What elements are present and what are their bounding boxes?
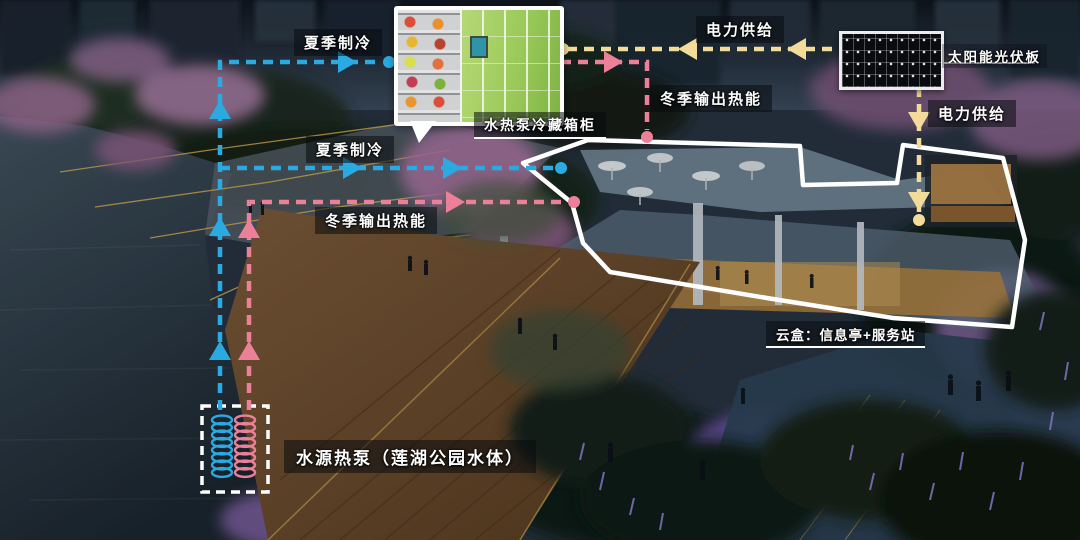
flow-arrow-left-icon (787, 38, 806, 60)
solar-panel-image (839, 31, 944, 90)
cloud-box-outline (523, 140, 1025, 327)
label-water-source-heat-pump: 水源热泵（莲湖公园水体） (284, 440, 536, 473)
flow-arrow-right-icon (446, 191, 465, 213)
cooling-endpoint-building (555, 162, 567, 174)
power-endpoint-building (913, 214, 925, 226)
flow-arrow-up-icon (209, 217, 231, 236)
heat-pump-cabinet-image (394, 6, 564, 126)
flow-arrow-up-icon (238, 219, 260, 238)
label-winter-heat-mid: 冬季输出热能 (315, 207, 437, 234)
flow-arrow-down-icon (908, 192, 930, 211)
heating-endpoint-roof (641, 131, 653, 143)
flow-arrow-up-icon (238, 341, 260, 360)
cooling-coil-icon (212, 416, 232, 477)
label-solar-pv-panel: 太阳能光伏板 (942, 44, 1047, 68)
flow-arrow-up-icon (209, 100, 231, 119)
flow-arrow-right-icon (604, 51, 623, 73)
heating-coil-icon (235, 416, 255, 477)
label-summer-cooling-mid: 夏季制冷 (306, 136, 394, 163)
flow-arrow-right-icon (443, 157, 462, 179)
cabinet-screen (470, 36, 488, 58)
flow-arrow-up-icon (209, 341, 231, 360)
label-power-supply-right: 电力供给 (928, 100, 1016, 127)
label-cloud-box: 云盒：信息亭+服务站 (766, 321, 925, 348)
label-summer-cooling-top: 夏季制冷 (294, 29, 382, 56)
label-power-supply-top: 电力供给 (696, 16, 784, 43)
cabinet-locker-doors (462, 10, 560, 122)
flow-arrow-down-icon (908, 112, 930, 131)
label-heat-pump-cabinet: 水热泵冷藏箱柜 (474, 112, 606, 139)
cabinet-food-shelves (398, 10, 462, 122)
label-winter-heat-top: 冬季输出热能 (650, 85, 772, 112)
energy-system-diagram: 夏季制冷 电力供给 冬季输出热能 太阳能光伏板 电力供给 水热泵冷藏箱柜 夏季制… (0, 0, 1080, 540)
flow-arrow-left-icon (678, 38, 697, 60)
callout-tail (410, 121, 436, 143)
heating-endpoint-building (568, 196, 580, 208)
